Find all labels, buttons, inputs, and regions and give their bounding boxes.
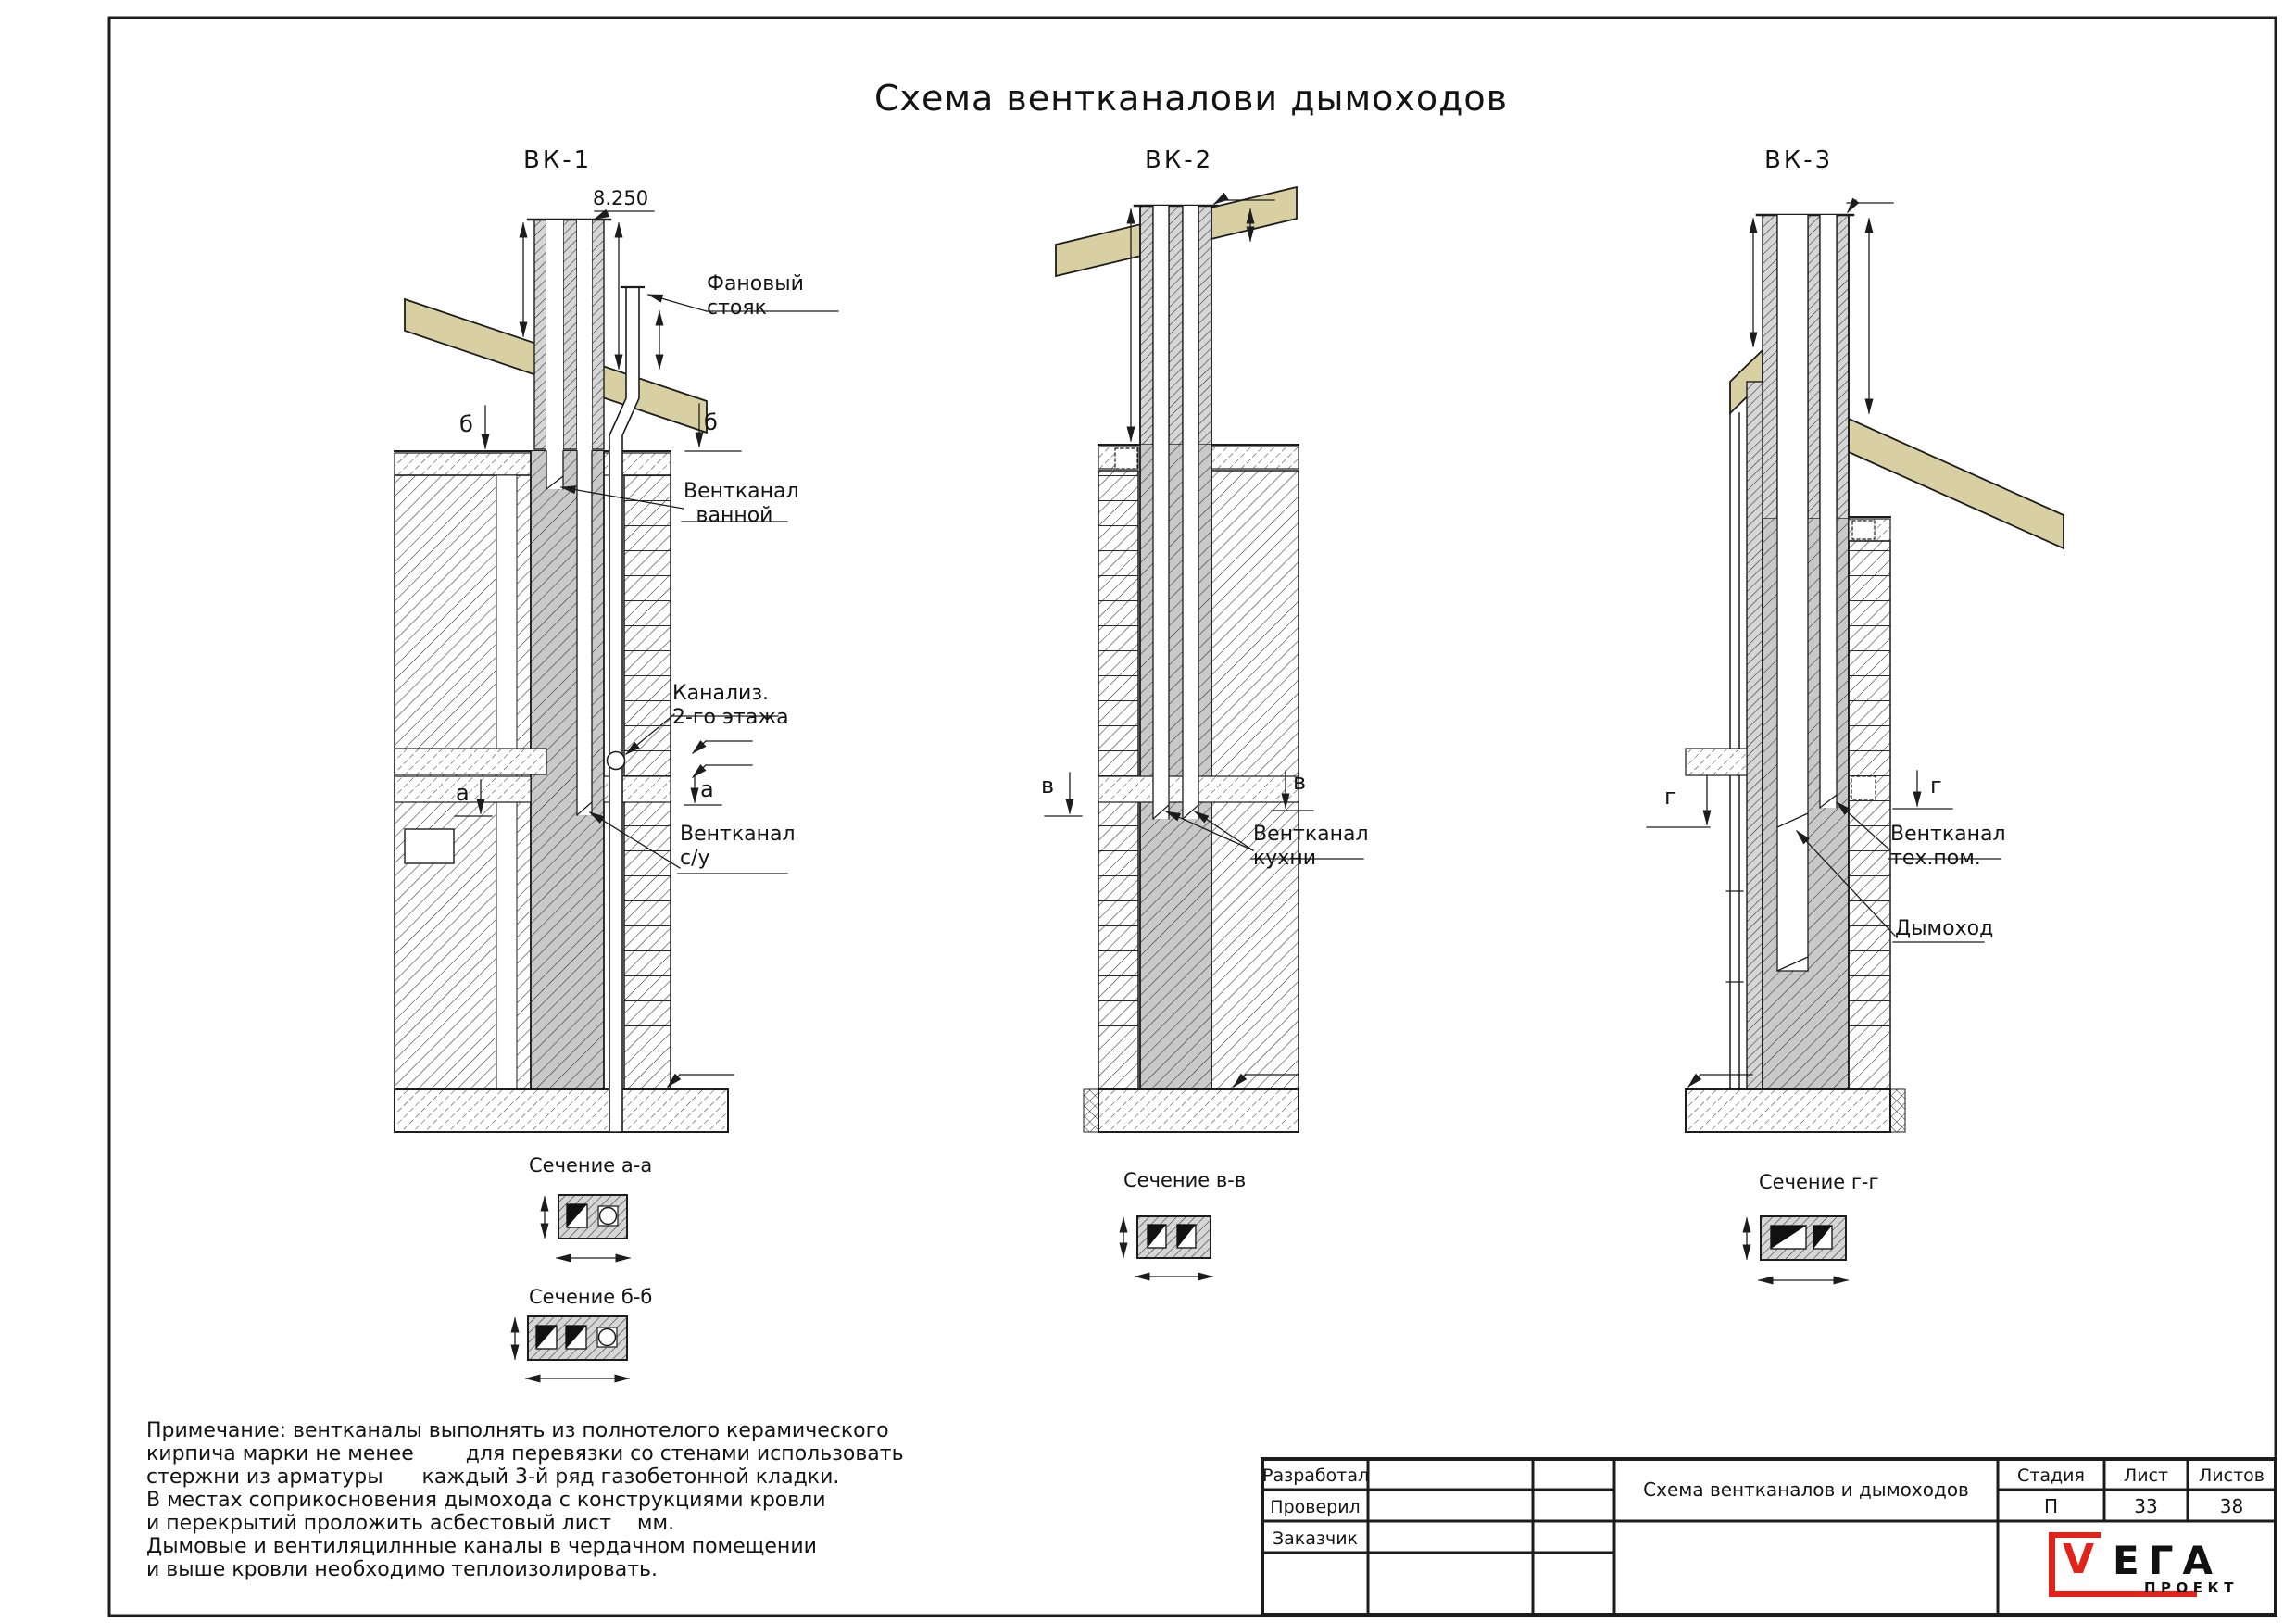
note-line-7: и выше кровли необходимо теплоизолироват… <box>146 1558 658 1581</box>
vk1-cut-marker-a-right: а <box>700 776 714 802</box>
vk1-elevation-mark: 8.250 <box>593 187 648 209</box>
titleblock-sheet-value: 33 <box>2104 1495 2188 1517</box>
titleblock-total-value: 38 <box>2188 1495 2276 1517</box>
vk3-floor-slab <box>1686 749 1747 775</box>
titleblock-row-client: Заказчик <box>1262 1529 1368 1549</box>
vega-project-logo: V ЕГА ПРОЕКТ <box>2005 1527 2272 1612</box>
note-line-3: стержни из арматуры каждый 3-й ряд газоб… <box>146 1466 839 1489</box>
titleblock-stage-value: П <box>1998 1495 2104 1517</box>
vk3-cut-marker-g-right: г <box>1930 773 1942 799</box>
vk1-section-bb <box>515 1316 629 1378</box>
vk3-smoke-duct <box>1777 215 1808 971</box>
titleblock-sheet-label: Лист <box>2104 1466 2188 1486</box>
titleblock-row-developed: Разработал <box>1262 1466 1368 1486</box>
vk1-chimney-top <box>528 220 610 449</box>
note-line-1: Примечание: вентканалы выполнять из полн… <box>146 1419 889 1442</box>
vk3-label-smoke-duct: Дымоход <box>1895 917 1993 941</box>
vk1-section-bb-title: Сечение б-б <box>529 1286 652 1308</box>
vk3-cut-marker-g-left: г <box>1664 784 1676 810</box>
logo-letter-v: V <box>2063 1536 2094 1583</box>
titleblock-stage-label: Стадия <box>1998 1466 2104 1486</box>
vk1-title: ВК-1 <box>523 146 592 174</box>
note-line-6: Дымовые и вентиляцилнные каналы в чердач… <box>146 1535 817 1558</box>
vk3-title: ВК-3 <box>1764 146 1833 174</box>
note-line-5: и перекрытий проложить асбестовый лист м… <box>146 1512 674 1535</box>
vk3-drawing <box>1647 200 2064 1280</box>
vk1-cut-marker-b-left: б <box>459 411 473 437</box>
vk1-cut-marker-b-right: б <box>704 409 718 435</box>
vk1-section-aa-title: Сечение а-а <box>529 1154 652 1176</box>
note-line-2: кирпича марки не менее для перевязки со … <box>146 1442 904 1466</box>
vk2-label-kitchen-vent: Вентканал кухни <box>1253 823 1369 871</box>
vk1-label-sewer-stack: Фановый стояк <box>707 272 804 321</box>
vk1-cut-marker-a-left: а <box>456 780 470 806</box>
vk3-section-gg-title: Сечение г-г <box>1759 1171 1879 1193</box>
vk3-label-tech-vent: Вентканал тех.пом. <box>1890 823 2006 871</box>
vk1-label-wc-vent: Вентканал с/у <box>680 823 796 871</box>
vk2-cut-marker-v-right: в <box>1293 769 1306 795</box>
logo-bracket-vertical <box>2049 1532 2055 1597</box>
titleblock-row-checked: Проверил <box>1262 1497 1368 1517</box>
note-line-4: В местах соприкосновения дымохода с конс… <box>146 1489 826 1512</box>
vk1-floor-slab <box>395 749 546 774</box>
vk1-label-bath-vent: Вентканал ванной <box>684 480 785 528</box>
logo-subtitle: ПРОЕКТ <box>2144 1579 2239 1596</box>
titleblock-doc-title: Схема вентканалов и дымоходов <box>1614 1478 1998 1501</box>
page-title: Схема вентканалови дымоходов <box>867 78 1515 119</box>
logo-letters-ega: ЕГА <box>2113 1538 2222 1583</box>
vk2-drawing <box>1045 187 1363 1277</box>
titleblock-total-label: Листов <box>2188 1466 2276 1486</box>
drawing-sheet: Схема вентканалови дымоходов ВК-1 ВК-2 В… <box>0 0 2296 1623</box>
vk2-title: ВК-2 <box>1145 146 1213 174</box>
vk2-section-vv <box>1123 1216 1212 1277</box>
vk1-section-aa <box>545 1195 630 1258</box>
drawing-linework <box>0 0 2296 1623</box>
vk2-cut-marker-v-left: в <box>1041 773 1054 799</box>
vk3-section-gg <box>1747 1216 1848 1280</box>
vk2-chimney-top <box>1135 206 1217 445</box>
vk2-section-vv-title: Сечение в-в <box>1123 1169 1246 1191</box>
vk1-label-sewer-2nd-floor: Канализ. 2-го этажа <box>672 682 789 730</box>
